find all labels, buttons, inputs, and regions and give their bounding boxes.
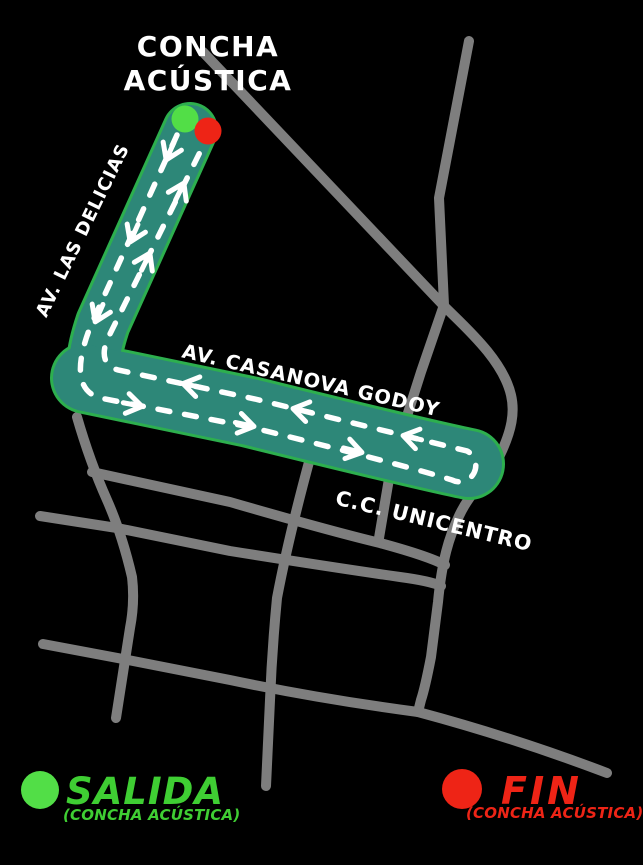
road-bottom [43,644,607,773]
route-start-dot [172,106,199,133]
start-marker-icon [21,771,59,809]
map-title: CONCHA ACÚSTICA [58,30,358,98]
route-map-canvas [0,0,643,865]
map-title-line2: ACÚSTICA [58,64,358,98]
finish-marker-icon [442,769,482,809]
legend-finish-detail: (CONCHA ACÚSTICA) [466,804,643,822]
road-vertical-top [400,41,469,438]
legend-start-detail: (CONCHA ACÚSTICA) [63,806,240,824]
route-map: CONCHA ACÚSTICA AV. LAS DELICIAS AV. CAS… [0,0,643,865]
route-finish-dot [195,118,222,145]
road-vertical-left [77,417,133,718]
map-title-line1: CONCHA [58,30,358,64]
